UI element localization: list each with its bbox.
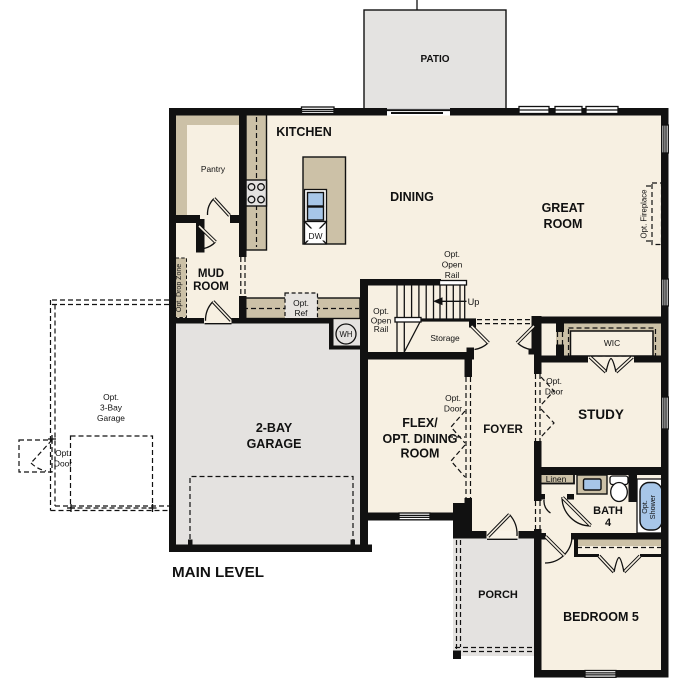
svg-text:PORCH: PORCH (478, 589, 518, 601)
svg-text:Garage: Garage (97, 413, 125, 423)
svg-text:Opt.: Opt. (445, 393, 461, 403)
svg-text:ROOM: ROOM (193, 281, 229, 293)
svg-text:ROOM: ROOM (401, 447, 440, 461)
svg-text:Ref: Ref (294, 308, 308, 318)
svg-text:Door: Door (444, 404, 462, 414)
svg-text:3-Bay: 3-Bay (100, 403, 123, 413)
svg-text:Door: Door (54, 459, 72, 469)
svg-text:Rail: Rail (374, 324, 389, 334)
svg-text:Up: Up (468, 297, 480, 307)
svg-text:FOYER: FOYER (483, 424, 523, 436)
svg-text:DINING: DINING (390, 190, 434, 204)
svg-text:WIC: WIC (604, 338, 620, 348)
svg-text:ROOM: ROOM (544, 217, 583, 231)
svg-text:Shower: Shower (648, 494, 657, 519)
svg-text:2-BAY: 2-BAY (256, 421, 293, 435)
svg-text:GARAGE: GARAGE (247, 437, 302, 451)
svg-text:STUDY: STUDY (578, 407, 624, 422)
svg-text:Opt.: Opt. (373, 306, 389, 316)
svg-text:BEDROOM 5: BEDROOM 5 (563, 610, 639, 624)
svg-text:Door: Door (545, 387, 563, 397)
svg-text:Rail: Rail (445, 270, 460, 280)
svg-text:Linen: Linen (546, 474, 567, 484)
svg-text:Opt.: Opt. (546, 376, 562, 386)
svg-text:KITCHEN: KITCHEN (276, 125, 332, 139)
svg-text:Opt.: Opt. (444, 249, 460, 259)
svg-text:WH: WH (340, 330, 353, 339)
svg-text:Open: Open (442, 260, 463, 270)
svg-text:Opt. Drop Zone: Opt. Drop Zone (176, 264, 183, 312)
svg-text:4: 4 (605, 517, 612, 529)
svg-text:Opt.: Opt. (55, 448, 71, 458)
svg-text:MUD: MUD (198, 268, 224, 280)
svg-text:OPT. DINING: OPT. DINING (382, 432, 457, 446)
svg-text:FLEX/: FLEX/ (402, 416, 438, 430)
svg-text:GREAT: GREAT (542, 201, 585, 215)
svg-text:Pantry: Pantry (201, 164, 226, 174)
svg-text:BATH: BATH (593, 505, 623, 517)
svg-text:MAIN LEVEL: MAIN LEVEL (172, 564, 264, 581)
svg-text:Storage: Storage (430, 333, 460, 343)
svg-text:DW: DW (309, 231, 323, 241)
svg-text:Opt. Fireplace: Opt. Fireplace (640, 190, 649, 239)
svg-text:Opt.: Opt. (293, 298, 309, 308)
svg-text:PATIO: PATIO (420, 54, 449, 65)
svg-text:Opt.: Opt. (103, 392, 119, 402)
